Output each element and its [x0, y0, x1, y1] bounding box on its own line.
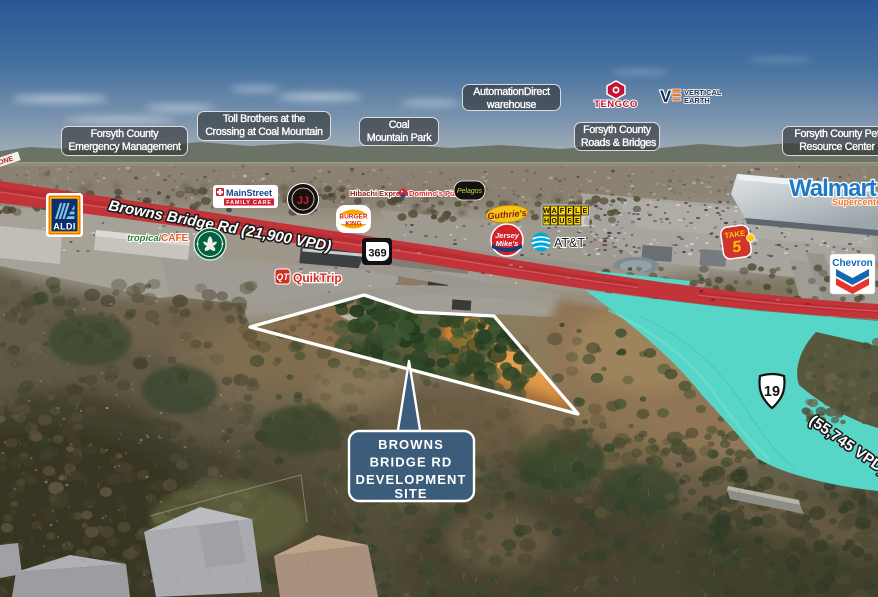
svg-text:F: F — [567, 208, 572, 215]
svg-text:MainStreet: MainStreet — [226, 188, 272, 198]
svg-text:A: A — [552, 208, 557, 215]
svg-text:H: H — [544, 218, 549, 225]
svg-text:BRIDGE RD: BRIDGE RD — [370, 455, 453, 470]
svg-text:Mike's: Mike's — [496, 239, 519, 248]
svg-text:W: W — [543, 208, 550, 215]
svg-text:Pelagos: Pelagos — [457, 188, 483, 195]
svg-text:V: V — [660, 87, 672, 106]
svg-text:E: E — [575, 218, 580, 225]
svg-text:tropical: tropical — [127, 233, 162, 244]
svg-text:QT: QT — [276, 272, 290, 282]
svg-text:QuikTrip: QuikTrip — [293, 271, 342, 285]
svg-text:FAMILY CARE: FAMILY CARE — [226, 200, 271, 206]
svg-text:Chevron: Chevron — [832, 258, 873, 269]
svg-text:CAFE: CAFE — [161, 233, 189, 244]
svg-text:EARTH: EARTH — [684, 96, 710, 105]
svg-text:AT&T: AT&T — [554, 236, 585, 250]
svg-text:369: 369 — [368, 248, 386, 260]
svg-text:L: L — [575, 208, 580, 215]
svg-text:U: U — [559, 218, 564, 225]
svg-text:TENGCO: TENGCO — [594, 99, 638, 110]
svg-text:19: 19 — [764, 384, 780, 400]
svg-text:ALDI: ALDI — [53, 222, 76, 232]
svg-text:S: S — [567, 218, 572, 225]
svg-text:F: F — [560, 208, 565, 215]
svg-text:O: O — [551, 218, 557, 225]
svg-text:KING: KING — [345, 221, 361, 228]
svg-text:SITE: SITE — [394, 486, 427, 501]
svg-text:JJ: JJ — [297, 195, 309, 207]
svg-text:BURGER: BURGER — [339, 214, 367, 221]
svg-text:BROWNS: BROWNS — [378, 437, 444, 452]
svg-text:DEVELOPMENT: DEVELOPMENT — [355, 472, 466, 487]
svg-text:Supercenter: Supercenter — [832, 197, 878, 207]
svg-text:E: E — [583, 208, 588, 215]
